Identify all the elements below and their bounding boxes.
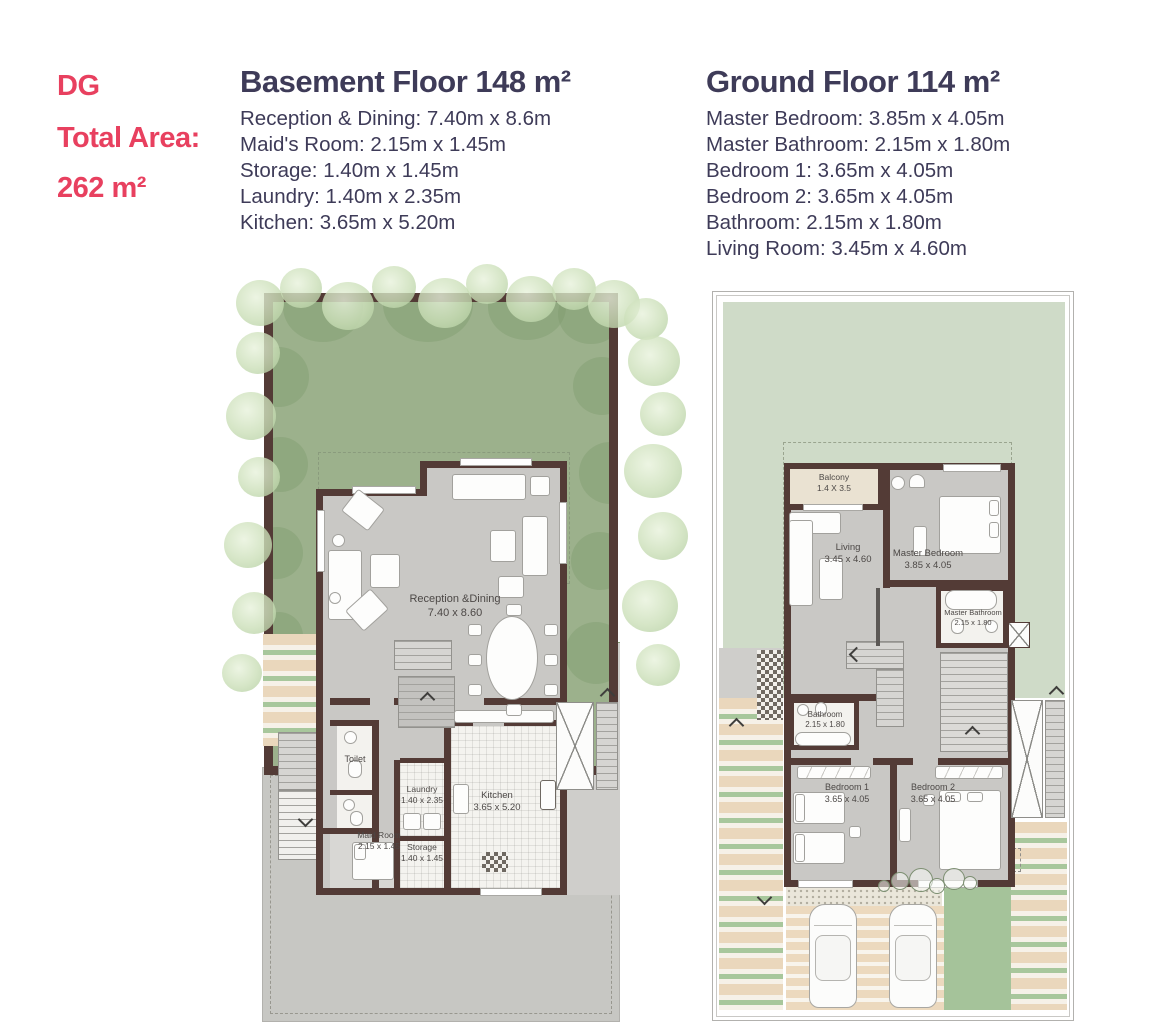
bedroom2-label: Bedroom 2 3.65 x 4.05 bbox=[903, 782, 963, 805]
sofa bbox=[522, 516, 548, 576]
interior-wall bbox=[330, 720, 374, 726]
sink-icon bbox=[343, 799, 355, 811]
lawn-patch bbox=[944, 880, 1011, 1010]
room-name: Bedroom 2 bbox=[903, 782, 963, 794]
room-dims: 7.40 x 8.60 bbox=[385, 606, 525, 620]
room-name: Storage bbox=[398, 842, 446, 853]
spec-line: Bathroom: 2.15m x 1.80m bbox=[706, 210, 1010, 236]
exterior-stairs bbox=[596, 702, 618, 790]
interior-wall bbox=[330, 698, 370, 705]
washer-icon bbox=[423, 813, 441, 830]
kitchen-label: Kitchen 3.65 x 5.20 bbox=[457, 790, 537, 815]
storage-label: Storage 1.40 x 1.45 bbox=[398, 842, 446, 864]
desk bbox=[899, 808, 911, 842]
room-name: Master Bathroom bbox=[935, 608, 1011, 618]
room-dims: 3.85 x 4.05 bbox=[885, 560, 971, 572]
sink-icon bbox=[344, 731, 357, 744]
light-well bbox=[556, 702, 594, 790]
exterior-stairs bbox=[1045, 700, 1065, 818]
pillow bbox=[795, 794, 805, 822]
window bbox=[798, 880, 853, 888]
sink-icon bbox=[891, 476, 905, 490]
basement-title: Basement Floor 148 m² bbox=[240, 64, 571, 100]
pillow bbox=[795, 834, 805, 862]
window bbox=[317, 510, 325, 572]
dining-chair bbox=[544, 624, 558, 636]
spec-line: Master Bathroom: 2.15m x 1.80m bbox=[706, 132, 1010, 158]
tree-icon bbox=[624, 298, 668, 340]
toilet-label: Toilet bbox=[338, 754, 372, 766]
room-dims: 2.15 x 1.80 bbox=[791, 720, 859, 730]
tree-icon bbox=[628, 336, 680, 386]
room-name: Maid Room bbox=[334, 830, 424, 841]
car-roof bbox=[895, 935, 931, 981]
interior-wall bbox=[938, 758, 1008, 765]
room-name: Kitchen bbox=[457, 790, 537, 802]
armchair bbox=[490, 530, 516, 562]
spec-line: Living Room: 3.45m x 4.60m bbox=[706, 236, 1010, 262]
kitchen-counter bbox=[454, 710, 554, 723]
tree-icon bbox=[232, 592, 276, 634]
tree-icon bbox=[322, 282, 374, 330]
tree-canopy bbox=[565, 622, 618, 684]
shrub-icon bbox=[943, 868, 965, 890]
ground-spec-list: Master Bedroom: 3.85m x 4.05m Master Bat… bbox=[706, 106, 1010, 262]
room-dims: 1.4 X 3.5 bbox=[791, 483, 877, 494]
dining-chair bbox=[506, 704, 522, 716]
interior-stairs bbox=[876, 669, 904, 727]
spec-line: Maid's Room: 2.15m x 1.45m bbox=[240, 132, 551, 158]
tree-icon bbox=[238, 457, 280, 497]
sofa bbox=[452, 474, 526, 500]
tree-icon bbox=[224, 522, 272, 568]
shrub-icon bbox=[878, 880, 890, 892]
room-dims: 3.45 x 4.60 bbox=[813, 554, 883, 566]
interior-wall bbox=[372, 720, 379, 832]
room-dims: 2.15 x 1.80 bbox=[935, 618, 1011, 628]
bedroom1-label: Bedroom 1 3.65 x 4.05 bbox=[817, 782, 877, 805]
wardrobe bbox=[935, 766, 1003, 779]
light-well bbox=[1011, 700, 1043, 818]
bathroom-label: Bathroom 2.15 x 1.80 bbox=[791, 710, 859, 731]
car-hood bbox=[814, 910, 852, 926]
dining-table bbox=[486, 616, 538, 700]
spec-line: Bedroom 2: 3.65m x 4.05m bbox=[706, 184, 1010, 210]
balcony-label: Balcony 1.4 X 3.5 bbox=[791, 472, 877, 494]
spec-line: Bedroom 1: 3.65m x 4.05m bbox=[706, 158, 1010, 184]
pillow bbox=[989, 522, 999, 538]
interior-wall bbox=[330, 790, 374, 795]
ground-plan: Balcony 1.4 X 3.5 bbox=[712, 291, 1074, 1021]
room-name: Living bbox=[813, 542, 883, 554]
spec-line: Master Bedroom: 3.85m x 4.05m bbox=[706, 106, 1010, 132]
car-icon bbox=[889, 904, 937, 1008]
car-icon bbox=[809, 904, 857, 1008]
tree-icon bbox=[466, 264, 508, 304]
tree-icon bbox=[624, 444, 682, 498]
total-area-label: Total Area: bbox=[57, 122, 200, 155]
car-hood bbox=[894, 910, 932, 926]
room-name: Reception &Dining bbox=[385, 592, 525, 606]
floor-plan-sheet: DG Total Area: 262 m² Basement Floor 148… bbox=[0, 0, 1158, 1031]
side-table bbox=[332, 534, 345, 547]
washer-icon bbox=[403, 813, 421, 830]
spec-line: Storage: 1.40m x 1.45m bbox=[240, 158, 551, 184]
tree-icon bbox=[236, 280, 284, 326]
ground-title: Ground Floor 114 m² bbox=[706, 64, 1000, 100]
room-name: Laundry bbox=[396, 784, 448, 795]
room-dims: 3.65 x 4.05 bbox=[817, 794, 877, 806]
dining-chair bbox=[468, 654, 482, 666]
room-dims: 3.65 x 4.05 bbox=[903, 794, 963, 806]
room-name: Master Bedroom bbox=[885, 548, 971, 560]
master-bedroom-label: Master Bedroom 3.85 x 4.05 bbox=[885, 548, 971, 573]
dining-chair bbox=[468, 624, 482, 636]
basin-icon bbox=[909, 474, 925, 488]
window bbox=[480, 888, 542, 896]
shrub-icon bbox=[891, 872, 909, 890]
tree-icon bbox=[640, 392, 686, 436]
side-table bbox=[329, 592, 341, 604]
tv-icon bbox=[876, 588, 880, 646]
nightstand bbox=[849, 826, 861, 838]
car-roof bbox=[815, 935, 851, 981]
dining-chair bbox=[544, 654, 558, 666]
pillow bbox=[967, 792, 983, 802]
kitchen-mat bbox=[482, 852, 508, 872]
stove-icon bbox=[540, 780, 556, 810]
tree-icon bbox=[418, 278, 472, 328]
dining-chair bbox=[544, 684, 558, 696]
interior-wall bbox=[791, 758, 851, 765]
side-garden-stripes bbox=[719, 698, 783, 1010]
tree-icon bbox=[226, 392, 276, 440]
coffee-table bbox=[370, 554, 400, 588]
tree-icon bbox=[506, 276, 556, 322]
spec-line: Laundry: 1.40m x 2.35m bbox=[240, 184, 551, 210]
total-area-value: 262 m² bbox=[57, 172, 146, 205]
interior-wall bbox=[400, 758, 447, 763]
interior-wall bbox=[791, 694, 884, 701]
window bbox=[943, 464, 1001, 472]
interior-wall bbox=[484, 698, 560, 705]
room-name: Bathroom bbox=[791, 710, 859, 720]
laundry-label: Laundry 1.40 x 2.35 bbox=[396, 784, 448, 806]
reception-label: Reception &Dining 7.40 x 8.60 bbox=[385, 592, 525, 621]
room-dims: 1.40 x 2.35 bbox=[396, 795, 448, 806]
spec-line: Reception & Dining: 7.40m x 8.6m bbox=[240, 106, 551, 132]
interior-wall bbox=[890, 765, 897, 880]
window bbox=[559, 502, 567, 564]
window bbox=[460, 458, 532, 466]
tree-icon bbox=[622, 580, 678, 632]
toilet-icon bbox=[350, 811, 363, 826]
room-dims: 1.40 x 1.45 bbox=[398, 853, 446, 864]
dining-chair bbox=[468, 684, 482, 696]
bathtub-icon bbox=[795, 732, 851, 746]
side-table bbox=[530, 476, 550, 496]
sofa bbox=[789, 520, 813, 606]
master-bathroom-label: Master Bathroom 2.15 x 1.80 bbox=[935, 608, 1011, 628]
spec-line: Kitchen: 3.65m x 5.20m bbox=[240, 210, 551, 236]
room-name: Bedroom 1 bbox=[817, 782, 877, 794]
tree-icon bbox=[280, 268, 322, 308]
tree-canopy bbox=[579, 442, 618, 504]
tree-canopy bbox=[573, 357, 618, 415]
tree-canopy bbox=[571, 532, 618, 590]
interior-wall bbox=[394, 760, 400, 888]
tree-icon bbox=[372, 266, 416, 308]
room-name: Toilet bbox=[338, 754, 372, 766]
paved-patch bbox=[757, 650, 783, 720]
tree-icon bbox=[638, 512, 688, 560]
interior-wall bbox=[883, 580, 1014, 587]
living-label: Living 3.45 x 4.60 bbox=[813, 542, 883, 567]
tree-icon bbox=[636, 644, 680, 686]
tree-icon bbox=[222, 654, 262, 692]
tree-icon bbox=[236, 332, 280, 374]
bathtub-icon bbox=[945, 590, 997, 610]
pillow bbox=[989, 500, 999, 516]
window bbox=[803, 504, 863, 511]
shaft bbox=[1008, 622, 1030, 648]
room-dims: 3.65 x 5.20 bbox=[457, 802, 537, 814]
room-name: Balcony bbox=[791, 472, 877, 483]
shrub-icon bbox=[963, 876, 977, 890]
interior-wall bbox=[873, 758, 913, 765]
unit-code: DG bbox=[57, 70, 100, 103]
basement-spec-list: Reception & Dining: 7.40m x 8.6m Maid's … bbox=[240, 106, 551, 236]
wardrobe bbox=[797, 766, 871, 779]
interior-stairs bbox=[394, 640, 452, 670]
basement-plan: Reception &Dining 7.40 x 8.60 Toilet Mai… bbox=[222, 262, 672, 1027]
